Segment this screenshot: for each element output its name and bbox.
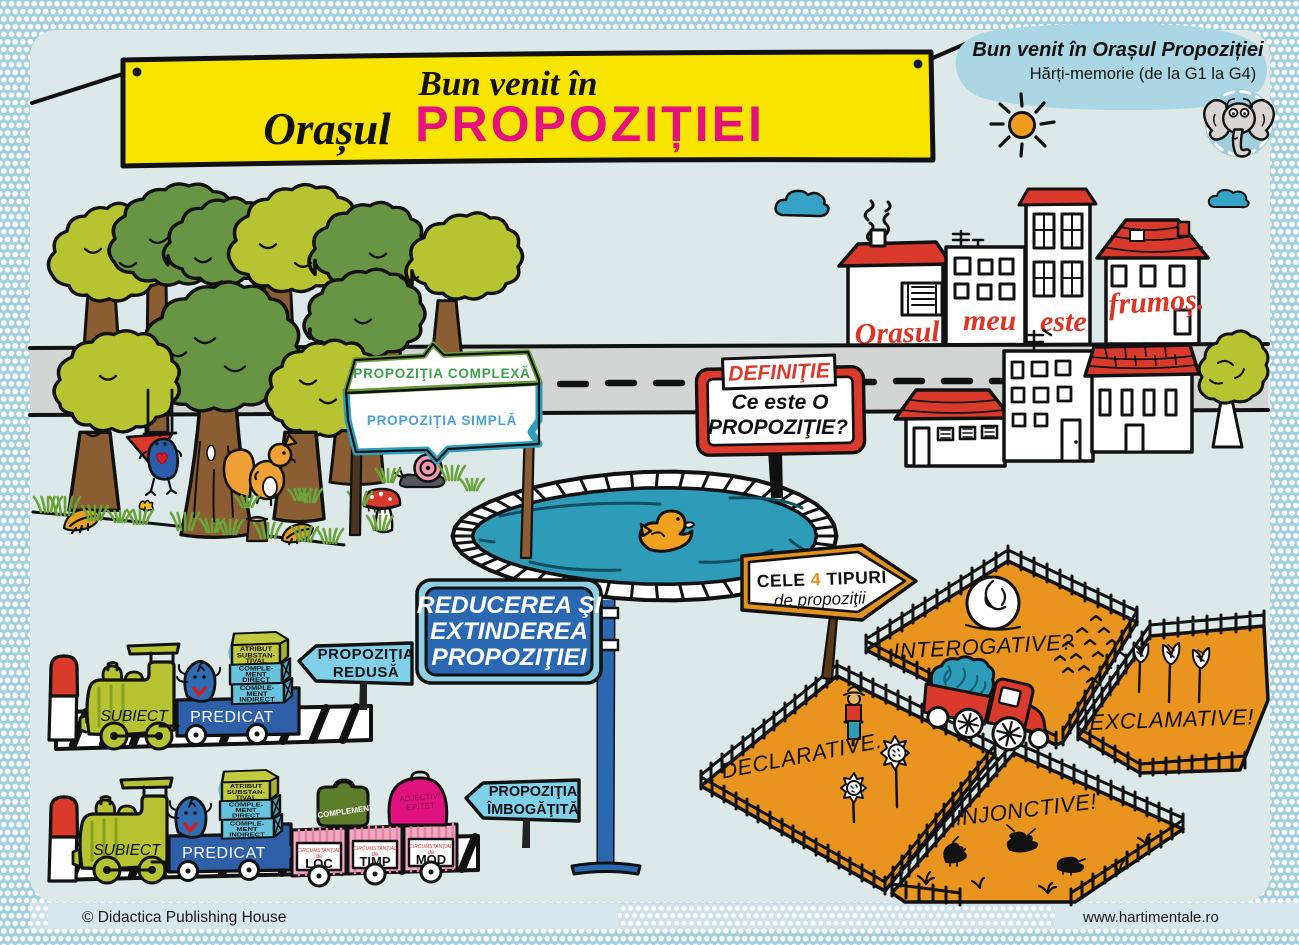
- svg-text:TIVAL: TIVAL: [235, 795, 256, 801]
- svg-text:www.hartimentale.ro: www.hartimentale.ro: [1082, 909, 1219, 926]
- svg-text:PROPOZIŢIA COMPLEXĂ: PROPOZIŢIA COMPLEXĂ: [353, 366, 530, 381]
- svg-text:INDIRECT: INDIRECT: [239, 697, 275, 703]
- svg-text:SUBIECT: SUBIECT: [93, 842, 162, 859]
- svg-text:de propoziţii: de propoziţii: [774, 588, 867, 610]
- svg-text:SUBIECT: SUBIECT: [100, 708, 169, 725]
- svg-text:TIVAL: TIVAL: [245, 659, 266, 665]
- svg-text:PROPOZIŢIE?: PROPOZIŢIE?: [708, 416, 848, 439]
- svg-text:PREDICAT: PREDICAT: [190, 709, 274, 726]
- svg-text:Hărți-memorie (de la G1 la G4): Hărți-memorie (de la G1 la G4): [1030, 65, 1256, 83]
- svg-text:Bun venit în Orașul Propoziție: Bun venit în Orașul Propoziției: [972, 39, 1264, 61]
- svg-text:EXTINDEREA: EXTINDEREA: [430, 618, 588, 645]
- svg-text:DIRECT: DIRECT: [242, 678, 271, 684]
- svg-text:PROPOZIŢIEI: PROPOZIŢIEI: [431, 644, 587, 671]
- svg-text:© Didactica Publishing House: © Didactica Publishing House: [82, 909, 286, 926]
- svg-text:meu: meu: [963, 304, 1016, 337]
- svg-text:Orașul: Orașul: [263, 104, 391, 155]
- svg-text:Ce este O: Ce este O: [732, 391, 829, 414]
- svg-text:INDIRECT: INDIRECT: [229, 832, 265, 838]
- svg-text:PROPOZIŢIA: PROPOZIŢIA: [318, 646, 415, 663]
- svg-text:REDUCEREA ŞI: REDUCEREA ŞI: [417, 592, 602, 619]
- svg-text:frumoș.: frumoș.: [1108, 283, 1206, 322]
- svg-text:PROPOZIŢIA SIMPLĂ: PROPOZIŢIA SIMPLĂ: [367, 413, 517, 428]
- svg-text:ÎMBOGĂŢITĂ: ÎMBOGĂŢITĂ: [486, 800, 579, 818]
- svg-text:DEFINIŢIE: DEFINIŢIE: [728, 359, 831, 386]
- svg-text:ATRIBUT: ATRIBUT: [240, 646, 273, 652]
- svg-text:PREDICAT: PREDICAT: [182, 845, 266, 862]
- svg-text:ATRIBUT: ATRIBUT: [230, 784, 263, 790]
- svg-text:REDUSĂ: REDUSĂ: [333, 664, 399, 681]
- svg-text:PROPOZIŢIA: PROPOZIŢIA: [489, 784, 578, 800]
- svg-text:PROPOZIȚIEI: PROPOZIȚIEI: [415, 96, 765, 152]
- svg-text:DIRECT: DIRECT: [232, 813, 261, 819]
